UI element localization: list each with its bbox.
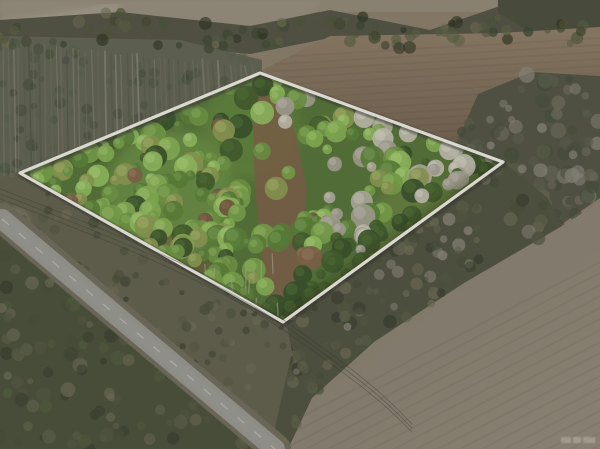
watermark-mark-1	[561, 437, 571, 443]
aerial-photo	[0, 0, 600, 449]
watermark-mark-2	[573, 437, 581, 443]
watermark-mark-3	[583, 437, 595, 443]
grain-light	[0, 0, 600, 449]
aerial-photo-stage	[0, 0, 600, 449]
watermark	[561, 437, 595, 443]
